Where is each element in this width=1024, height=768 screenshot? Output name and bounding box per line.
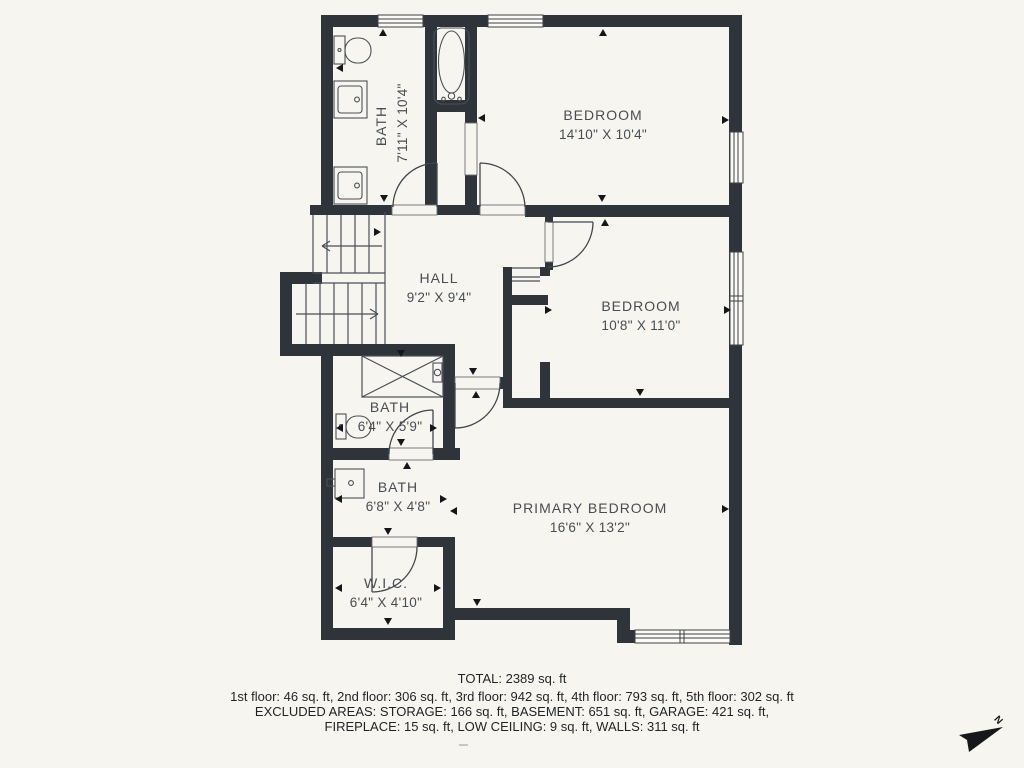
bedroom-door bbox=[480, 163, 525, 207]
room-label-bedroom2: BEDROOM bbox=[601, 298, 680, 314]
floor-areas-text: 1st floor: 46 sq. ft, 2nd floor: 306 sq.… bbox=[0, 689, 1024, 704]
window bbox=[730, 132, 743, 183]
closet-shelf bbox=[512, 268, 540, 281]
scale-tick bbox=[459, 744, 468, 746]
primary-door bbox=[455, 383, 500, 428]
room-dims-hall: 9'2" X 9'4" bbox=[407, 290, 472, 305]
room-dims-bath2: 6'4" X 5'9" bbox=[358, 419, 423, 434]
window bbox=[378, 15, 423, 27]
excluded-areas-text-2: FIREPLACE: 15 sq. ft, LOW CEILING: 9 sq.… bbox=[0, 719, 1024, 734]
bathtub-icon bbox=[434, 28, 469, 104]
room-label-bath2: BATH bbox=[370, 399, 410, 415]
room-label-bath1: BATH bbox=[373, 106, 389, 146]
linen-closet-opening bbox=[465, 123, 477, 175]
skylight-shaft bbox=[362, 356, 443, 397]
window bbox=[635, 630, 730, 643]
room-label-hall: HALL bbox=[419, 270, 458, 286]
room-dims-bedroom2: 10'8" X 11'0" bbox=[601, 318, 680, 333]
room-dims-bath3: 6'8" X 4'8" bbox=[366, 499, 431, 514]
window bbox=[730, 252, 743, 345]
floorplan-page: BATH 7'11" X 10'4" BEDROOM 14'10" X 10'4… bbox=[0, 0, 1024, 768]
sink-vanity-icon bbox=[334, 81, 367, 118]
room-dims-bath1: 7'11" X 10'4" bbox=[395, 83, 410, 162]
bedroom2-door bbox=[548, 222, 593, 267]
toilet-icon bbox=[334, 36, 371, 64]
room-dims-bedroom1: 14'10" X 10'4" bbox=[559, 127, 647, 142]
room-label-bath3: BATH bbox=[378, 479, 418, 495]
excluded-areas-text: EXCLUDED AREAS: STORAGE: 166 sq. ft, BAS… bbox=[0, 704, 1024, 719]
room-label-bedroom1: BEDROOM bbox=[563, 107, 642, 123]
room-dims-wic: 6'4" X 4'10" bbox=[350, 595, 422, 610]
window bbox=[488, 15, 543, 27]
total-area-text: TOTAL: 2389 sq. ft bbox=[0, 671, 1024, 686]
stair-arrow-down bbox=[296, 309, 378, 319]
sink-vanity-icon bbox=[334, 167, 367, 204]
room-dims-primary: 16'6" X 13'2" bbox=[550, 520, 630, 535]
room-label-primary: PRIMARY BEDROOM bbox=[513, 500, 668, 516]
room-label-wic: W.I.C. bbox=[364, 575, 408, 591]
stair-arrow-up bbox=[322, 241, 382, 251]
floorplan-drawing: BATH 7'11" X 10'4" BEDROOM 14'10" X 10'4… bbox=[0, 0, 1024, 768]
